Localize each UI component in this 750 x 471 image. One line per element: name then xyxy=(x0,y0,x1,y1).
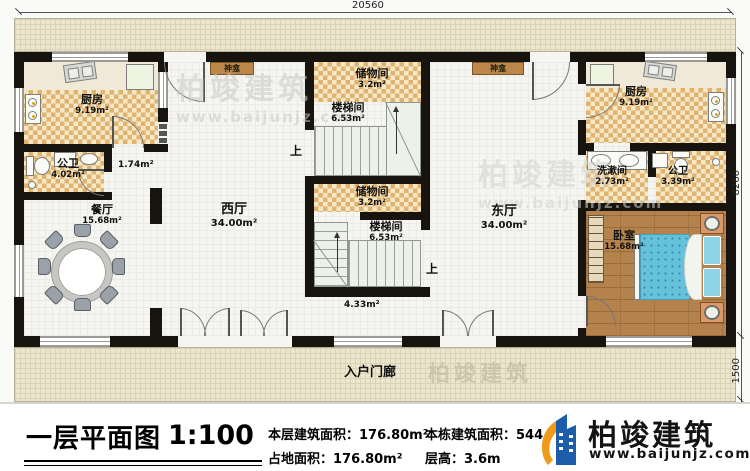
wall xyxy=(158,108,168,122)
stairs-lower-run xyxy=(348,240,421,287)
dining-chair xyxy=(74,298,91,311)
toilet-tank xyxy=(26,156,34,176)
stairs-direction-arrow-head xyxy=(334,232,340,238)
stat-total-area: 本栋建筑面积：544 xyxy=(425,424,543,443)
bed-pillow xyxy=(703,268,721,297)
room-label-west-hall: 西厅 34.00m² xyxy=(202,203,266,229)
stairs-direction-arrow-head xyxy=(393,106,399,112)
wall xyxy=(578,120,586,155)
stairs-direction-arrow xyxy=(337,238,338,272)
wall xyxy=(578,328,586,336)
room-label-washroom: 洗漱间 2.73m² xyxy=(584,166,640,187)
stat-floor-height: 层高：3.6m xyxy=(425,448,501,467)
room-label-kitchen-left: 厨房 9.19m² xyxy=(60,94,124,116)
wall xyxy=(150,188,162,224)
door-leaf xyxy=(492,310,494,336)
brand-logo-icon xyxy=(534,409,586,471)
door-opening xyxy=(164,52,206,62)
brand-website: www.baijunjz.com xyxy=(589,446,750,462)
wall xyxy=(144,144,168,152)
floor-plan-canvas: 20560 8260 1500 入户门廊 xyxy=(0,0,750,471)
door-leaf xyxy=(586,296,588,326)
dimension-porch-height: 1500 xyxy=(731,358,742,383)
wall xyxy=(24,144,112,152)
door-leaf xyxy=(180,308,182,336)
stat-floor-area: 本层建筑面积：176.80m² xyxy=(268,424,428,443)
room-label-stairwell-bottom: 楼梯间 6.53m² xyxy=(356,221,416,243)
room-label-storage-bottom: 储物间 3.2m² xyxy=(342,186,402,208)
sink-basin xyxy=(647,64,659,75)
plan-title: 一层平面图 xyxy=(26,418,161,455)
bed-sheet-fold xyxy=(684,234,702,300)
door-opening xyxy=(440,336,496,347)
dimension-line-top xyxy=(20,12,732,13)
burner xyxy=(28,111,37,120)
door-leaf xyxy=(240,310,242,336)
room-label-bath-left: 公卫 4.02m² xyxy=(44,158,92,180)
entry-door-opening xyxy=(178,336,292,347)
wall xyxy=(305,62,314,130)
door-opening xyxy=(530,52,570,62)
sink-basin xyxy=(661,66,673,77)
title-underline xyxy=(24,460,262,462)
room-label-dining: 餐厅 15.68m² xyxy=(74,204,130,226)
dimension-total-width: 20560 xyxy=(352,0,384,11)
room-label-storage-top: 储物间 3.2m² xyxy=(342,68,402,90)
sliding-door xyxy=(159,124,167,129)
door-leaf xyxy=(203,62,205,102)
wall xyxy=(360,212,430,220)
stat-site-area: 占地面积：176.80m² xyxy=(268,448,402,467)
fridge xyxy=(126,64,154,90)
door-leaf xyxy=(442,310,444,336)
sliding-door xyxy=(159,131,167,136)
room-label-east-hall: 东厅 34.00m² xyxy=(472,205,536,231)
door-leaf xyxy=(532,62,534,100)
wall xyxy=(586,143,594,151)
stove xyxy=(25,94,41,124)
bed-pillow xyxy=(703,236,721,265)
roof-eave-band xyxy=(14,18,736,52)
wall xyxy=(104,152,112,172)
wall xyxy=(578,62,586,84)
title-underline xyxy=(24,465,262,466)
room-label-bath-right: 公卫 3.39m² xyxy=(652,166,704,187)
stairs-upper-flight xyxy=(314,126,388,176)
wall xyxy=(421,62,430,230)
shrine-niche: 神龛 xyxy=(210,62,254,75)
room-label-bedroom: 卧室 15.68m² xyxy=(596,230,652,252)
wall xyxy=(305,287,430,297)
area-label-center-corridor: 4.33m² xyxy=(344,300,380,310)
wall xyxy=(578,200,586,296)
toilet-tank xyxy=(672,151,690,158)
burner xyxy=(711,109,720,118)
dimension-main-height: 8260 xyxy=(731,170,742,195)
sink-basin xyxy=(67,67,79,79)
room-label-stairwell-top: 楼梯间 6.53m² xyxy=(318,102,378,124)
burner xyxy=(711,96,720,105)
shower-head xyxy=(712,158,720,166)
window xyxy=(14,88,24,132)
door-leaf xyxy=(286,310,288,336)
wall xyxy=(305,176,314,297)
stairs-direction-arrow xyxy=(396,112,397,154)
wall xyxy=(150,308,162,336)
window xyxy=(334,336,402,347)
dimension-line-right xyxy=(741,52,742,402)
fridge xyxy=(590,64,614,86)
stairs-up-label: 上 xyxy=(290,142,302,159)
dining-chair xyxy=(38,258,51,275)
wall xyxy=(630,143,728,151)
window xyxy=(726,78,736,124)
sliding-door xyxy=(159,138,167,143)
shower-head xyxy=(28,181,36,189)
stairs-up-label: 上 xyxy=(426,260,438,277)
porch-label: 入户门廊 xyxy=(300,366,440,381)
window xyxy=(14,245,24,297)
sink-basin xyxy=(81,65,93,77)
stove xyxy=(708,92,724,122)
room-label-kitchen-right: 厨房 9.19m² xyxy=(604,86,668,108)
area-label-corridor: 1.74m² xyxy=(118,160,154,170)
nightstand xyxy=(700,213,724,234)
stairs-lower-flight xyxy=(314,222,348,287)
burner xyxy=(28,98,37,107)
door-leaf xyxy=(228,308,230,336)
window xyxy=(606,336,692,347)
nightstand xyxy=(700,302,724,323)
wall xyxy=(305,176,430,184)
window xyxy=(645,52,707,62)
window xyxy=(40,336,110,347)
window xyxy=(52,52,128,62)
wall xyxy=(586,203,728,211)
door-leaf xyxy=(112,116,114,148)
dining-chair xyxy=(112,258,125,275)
plan-scale: 1:100 xyxy=(168,420,254,451)
title-block: 一层平面图 1:100 本层建筑面积：176.80m² 占地面积：176.80m… xyxy=(0,402,750,471)
shrine-niche: 神龛 xyxy=(472,62,524,75)
